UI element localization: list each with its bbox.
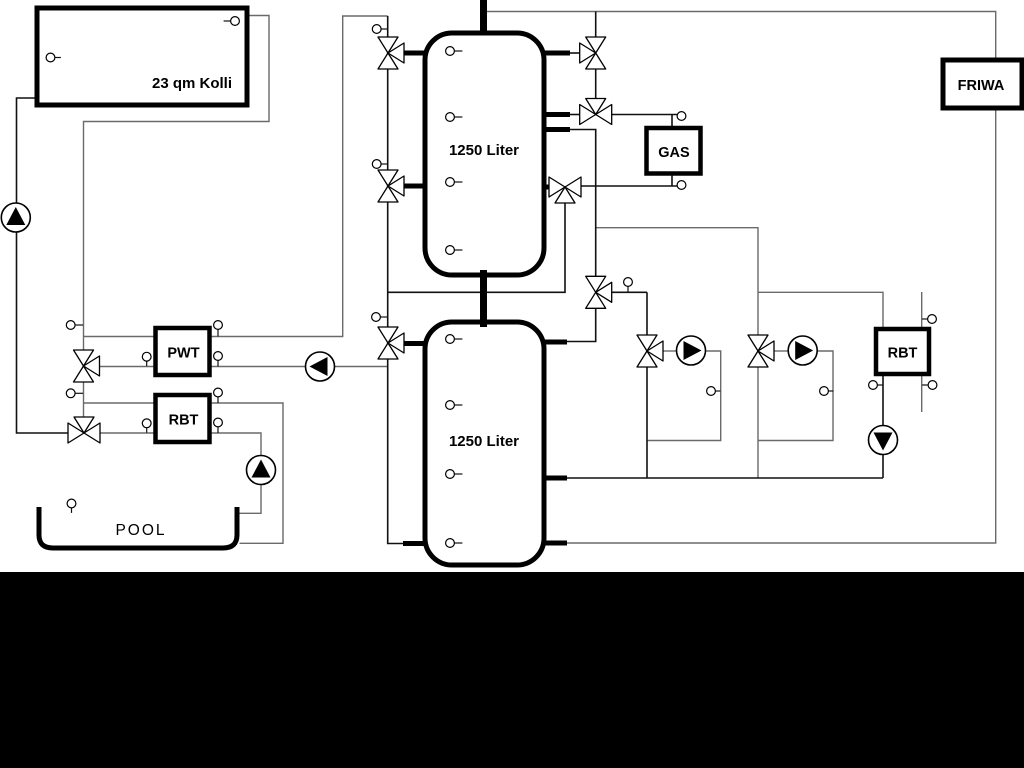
sensor-bulb — [928, 381, 937, 390]
sensor-bulb — [66, 389, 75, 398]
sensor-bulb — [372, 160, 381, 169]
pool-label: POOL — [115, 522, 166, 539]
sensor-bulb — [214, 388, 223, 397]
pwt-label: PWT — [167, 346, 199, 362]
circulation-pump — [677, 336, 706, 365]
sensor-bulb — [446, 246, 455, 255]
sensor-bulb — [446, 539, 455, 548]
sensor-bulb — [67, 499, 76, 508]
schematic-page: 23 qm Kolli 1250 Liter 1250 Liter GAS FR… — [0, 0, 1024, 768]
sensor-bulb — [446, 401, 455, 410]
sensor-bulb — [231, 17, 240, 26]
sensor-bulb — [214, 418, 223, 427]
sensor-bulb — [446, 178, 455, 187]
sensor-bulb — [446, 113, 455, 122]
bottom-black-bar — [0, 572, 1024, 768]
sensor-bulb — [142, 419, 151, 428]
tank-top-label: 1250 Liter — [449, 142, 519, 159]
sensor-bulb — [372, 25, 381, 34]
circulation-pump — [788, 336, 817, 365]
temperature-sensor — [677, 181, 686, 190]
gas-label: GAS — [658, 145, 690, 161]
circulation-pump — [247, 456, 276, 485]
tank-bottom-label: 1250 Liter — [449, 433, 519, 450]
sensor-bulb — [446, 470, 455, 479]
temperature-sensor — [677, 112, 686, 121]
circulation-pump — [306, 352, 335, 381]
sensor-bulb — [446, 47, 455, 56]
sensor-bulb — [928, 315, 937, 324]
sensor-bulb — [214, 352, 223, 361]
pool-rbt-label: RBT — [169, 413, 199, 429]
heating-schematic: 23 qm Kolli 1250 Liter 1250 Liter GAS FR… — [0, 0, 1024, 768]
sensor-bulb — [869, 381, 878, 390]
circulation-pump — [869, 426, 898, 455]
sensor-bulb — [446, 335, 455, 344]
collector-label: 23 qm Kolli — [152, 75, 232, 92]
sensor-bulb — [624, 278, 633, 287]
sensor-bulb — [46, 53, 55, 62]
sensor-bulb — [214, 321, 223, 330]
sensor-bulb — [142, 352, 151, 361]
sensor-bulb — [677, 181, 686, 190]
heating-rbt-label: RBT — [888, 346, 918, 362]
sensor-bulb — [372, 313, 381, 322]
sensor-bulb — [66, 321, 75, 330]
friwa-label: FRIWA — [958, 78, 1005, 94]
sensor-bulb — [677, 112, 686, 121]
sensor-bulb — [820, 387, 829, 396]
sensor-bulb — [707, 387, 716, 396]
circulation-pump — [1, 203, 30, 232]
